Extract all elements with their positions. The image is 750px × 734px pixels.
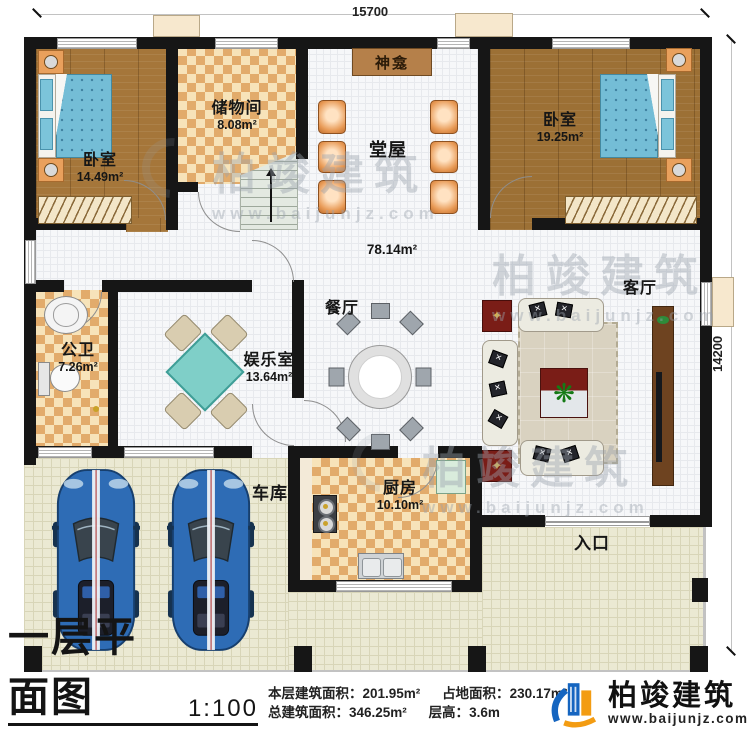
plan-scale: 1:100: [188, 695, 258, 723]
wall: [650, 515, 712, 527]
pillar: [294, 646, 312, 672]
room-label-living: 客厅: [610, 280, 670, 298]
entrance-sliding-door: [545, 516, 650, 526]
wardrobe: [38, 196, 132, 224]
bed-sheet-fold: [642, 74, 658, 158]
pillar: [692, 578, 708, 602]
stat-label: 本层建筑面积：: [268, 686, 363, 701]
stat-value: 346.25m²: [349, 705, 407, 720]
side-table: ✦: [482, 300, 512, 332]
walkway-floor: [288, 592, 482, 672]
window: [552, 38, 630, 49]
plan-stats: 本层建筑面积：201.95m² 占地面积：230.17m² 总建筑面积：346.…: [268, 684, 585, 722]
wall: [470, 515, 545, 527]
exterior-step: [455, 13, 513, 37]
dining-chair: [329, 368, 345, 387]
stove: [313, 495, 337, 533]
wall: [288, 446, 300, 592]
room-label-game-room: 娱乐室 13.64m²: [230, 352, 308, 384]
room-label-hall: 堂屋: [348, 140, 428, 160]
window: [437, 38, 470, 49]
sink-basin: [383, 558, 402, 577]
logo-building-icon: [548, 676, 602, 730]
window: [215, 38, 278, 49]
burner-icon: [318, 499, 335, 516]
nightstand: [666, 48, 692, 72]
room-label-bathroom: 公卫 7.26m²: [40, 342, 116, 374]
dim-tick: [32, 8, 42, 18]
window: [25, 240, 36, 284]
bed-pillow: [40, 118, 53, 150]
shrine-altar: 神龛: [352, 48, 432, 76]
wall: [478, 218, 490, 230]
room-label-storage: 储物间 8.08m²: [192, 100, 282, 132]
room-label-bedroom-right: 卧室 19.25m²: [515, 112, 605, 144]
side-table: ✦: [482, 450, 512, 482]
hall-tea-table: [430, 141, 458, 173]
hall-tea-table: [318, 141, 346, 173]
top-dimension-label: 15700: [352, 4, 388, 19]
exterior-step: [153, 15, 200, 37]
shrine-label: 神龛: [375, 52, 409, 73]
wall: [178, 182, 198, 192]
logo-name: 柏竣建筑: [608, 681, 749, 711]
exterior-step: [712, 277, 734, 327]
room-label-kitchen: 厨房 10.10m²: [358, 480, 442, 512]
dining-chair: [371, 303, 390, 319]
plan-title-group: 一层平面图 1:100: [8, 678, 258, 726]
window: [336, 581, 452, 592]
company-logo: 柏竣建筑 www.baijunjz.com: [548, 676, 749, 730]
wall: [166, 37, 178, 230]
pillar: [468, 646, 486, 672]
window: [38, 447, 92, 458]
window: [124, 447, 214, 458]
sink-basin: [362, 558, 381, 577]
bed-pillow: [661, 79, 674, 111]
stat-label: 占地面积：: [442, 686, 510, 701]
stat-value: 201.95m²: [363, 686, 421, 701]
stat-label: 总建筑面积：: [268, 705, 349, 720]
dim-tick: [700, 8, 710, 18]
hall-area-label: 78.14m²: [352, 242, 432, 257]
kitchen-sink: [358, 553, 404, 579]
room-label-garage: 车库: [240, 484, 300, 503]
dining-chair: [371, 434, 390, 450]
wall: [296, 37, 308, 159]
room-label-entrance: 入口: [562, 534, 622, 553]
room-label-dining: 餐厅: [312, 300, 372, 318]
coffee-table: ❋: [540, 368, 588, 418]
bed-pillow: [40, 79, 53, 111]
burner-icon: [318, 516, 335, 533]
door-knob: [93, 406, 99, 412]
logo-url: www.baijunjz.com: [608, 711, 749, 726]
bathroom-sink: [44, 296, 88, 334]
sofa-pillow: ✕: [555, 302, 573, 319]
bedroom-left-door-floor: [126, 218, 168, 232]
nightstand: [38, 50, 64, 74]
tv-screen: [656, 372, 662, 462]
dining-chair: [416, 368, 432, 387]
wall: [478, 37, 490, 230]
dining-table: [348, 345, 412, 409]
window: [57, 38, 137, 49]
hall-chair: [430, 100, 458, 134]
hall-chair: [318, 100, 346, 134]
title-block: 一层平面图 1:100 本层建筑面积：201.95m² 占地面积：230.17m…: [0, 676, 750, 734]
hall-chair: [430, 180, 458, 214]
kitchen-counter-floor: [300, 458, 312, 582]
room-label-bedroom-left: 卧室 14.49m²: [55, 152, 145, 184]
stat-label: 层高：: [429, 705, 470, 720]
wardrobe: [565, 196, 697, 224]
pillar: [690, 646, 708, 672]
stat-value: 3.6m: [469, 705, 500, 720]
window: [701, 282, 712, 326]
bed-pillow: [661, 118, 674, 150]
plant-icon: [657, 316, 669, 324]
stair-direction-arrow: [270, 170, 272, 222]
hall-chair: [318, 180, 346, 214]
plan-title: 一层平面图: [8, 603, 174, 723]
right-dimension-line: [731, 40, 732, 652]
nightstand: [666, 158, 692, 182]
right-dimension-label: 14200: [710, 336, 725, 372]
wall: [118, 280, 252, 292]
bed-sheet-fold: [56, 74, 72, 158]
